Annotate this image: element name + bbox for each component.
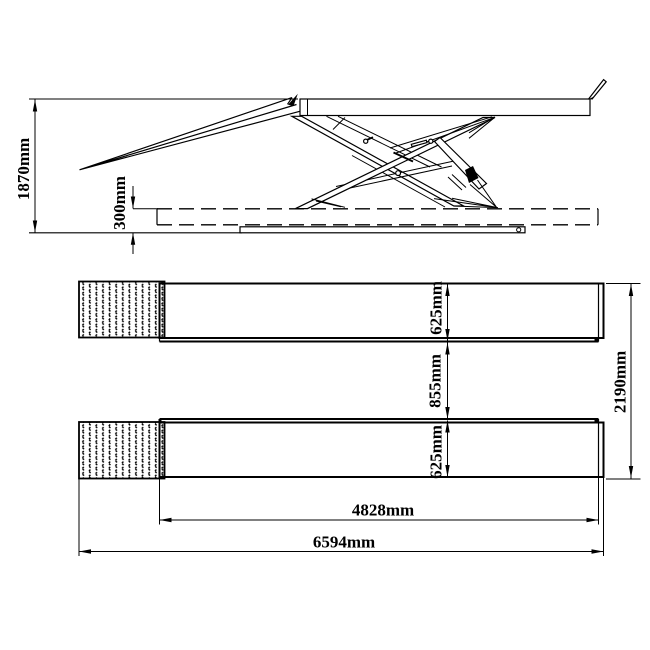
svg-text:4828mm: 4828mm bbox=[352, 501, 414, 520]
svg-text:625mm: 625mm bbox=[427, 281, 446, 335]
svg-text:300mm: 300mm bbox=[110, 176, 129, 230]
svg-text:2190mm: 2190mm bbox=[611, 351, 630, 413]
svg-text:855mm: 855mm bbox=[426, 354, 445, 408]
svg-text:6594mm: 6594mm bbox=[313, 533, 375, 552]
svg-text:1870mm: 1870mm bbox=[14, 138, 33, 200]
svg-text:625mm: 625mm bbox=[427, 425, 446, 479]
